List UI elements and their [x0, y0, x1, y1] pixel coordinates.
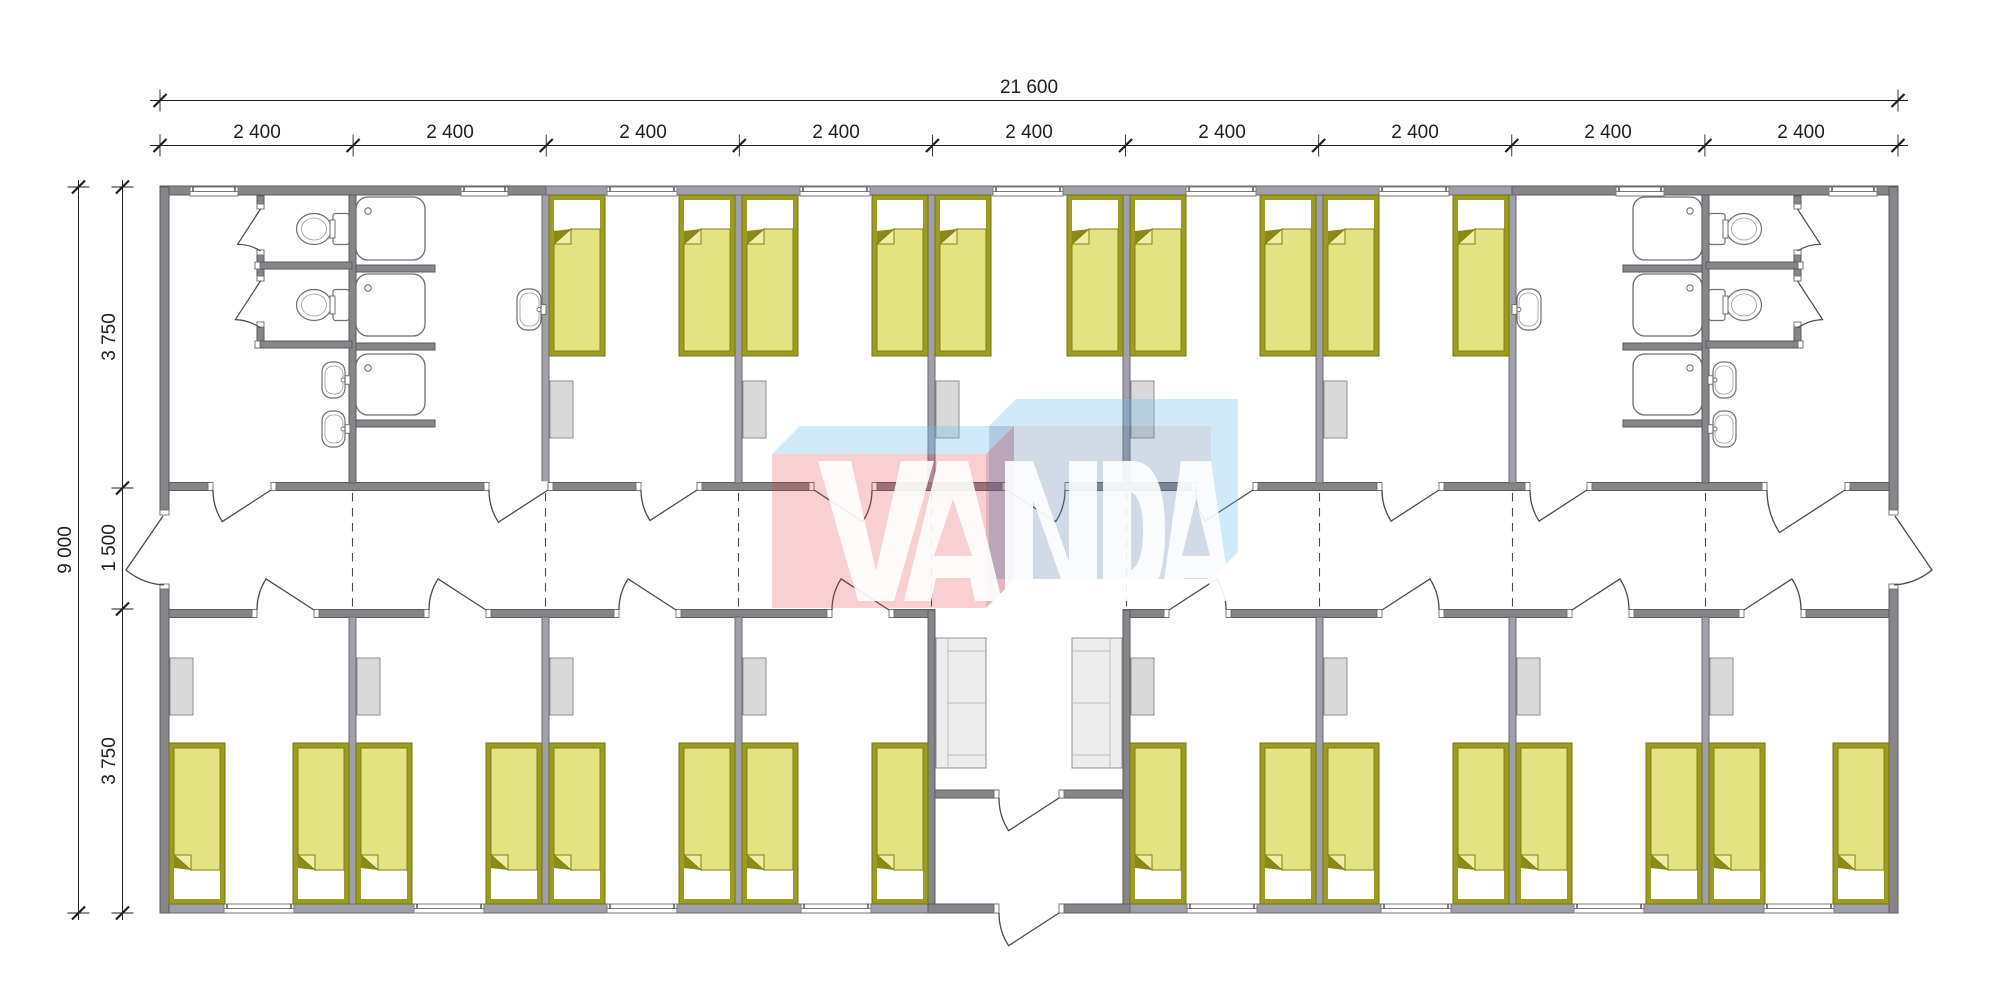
svg-text:9 000: 9 000 [55, 526, 76, 574]
svg-text:3 750: 3 750 [99, 313, 120, 361]
svg-text:2 400: 2 400 [812, 122, 860, 143]
svg-text:21 600: 21 600 [1000, 77, 1058, 98]
svg-text:2 400: 2 400 [426, 122, 474, 143]
svg-text:2 400: 2 400 [619, 122, 667, 143]
svg-text:2 400: 2 400 [1005, 122, 1053, 143]
svg-text:3 750: 3 750 [99, 737, 120, 785]
svg-text:2 400: 2 400 [1777, 122, 1825, 143]
svg-text:2 400: 2 400 [1391, 122, 1439, 143]
svg-text:2 400: 2 400 [233, 122, 281, 143]
svg-text:2 400: 2 400 [1584, 122, 1632, 143]
svg-text:2 400: 2 400 [1198, 122, 1246, 143]
svg-text:1 500: 1 500 [99, 524, 120, 572]
